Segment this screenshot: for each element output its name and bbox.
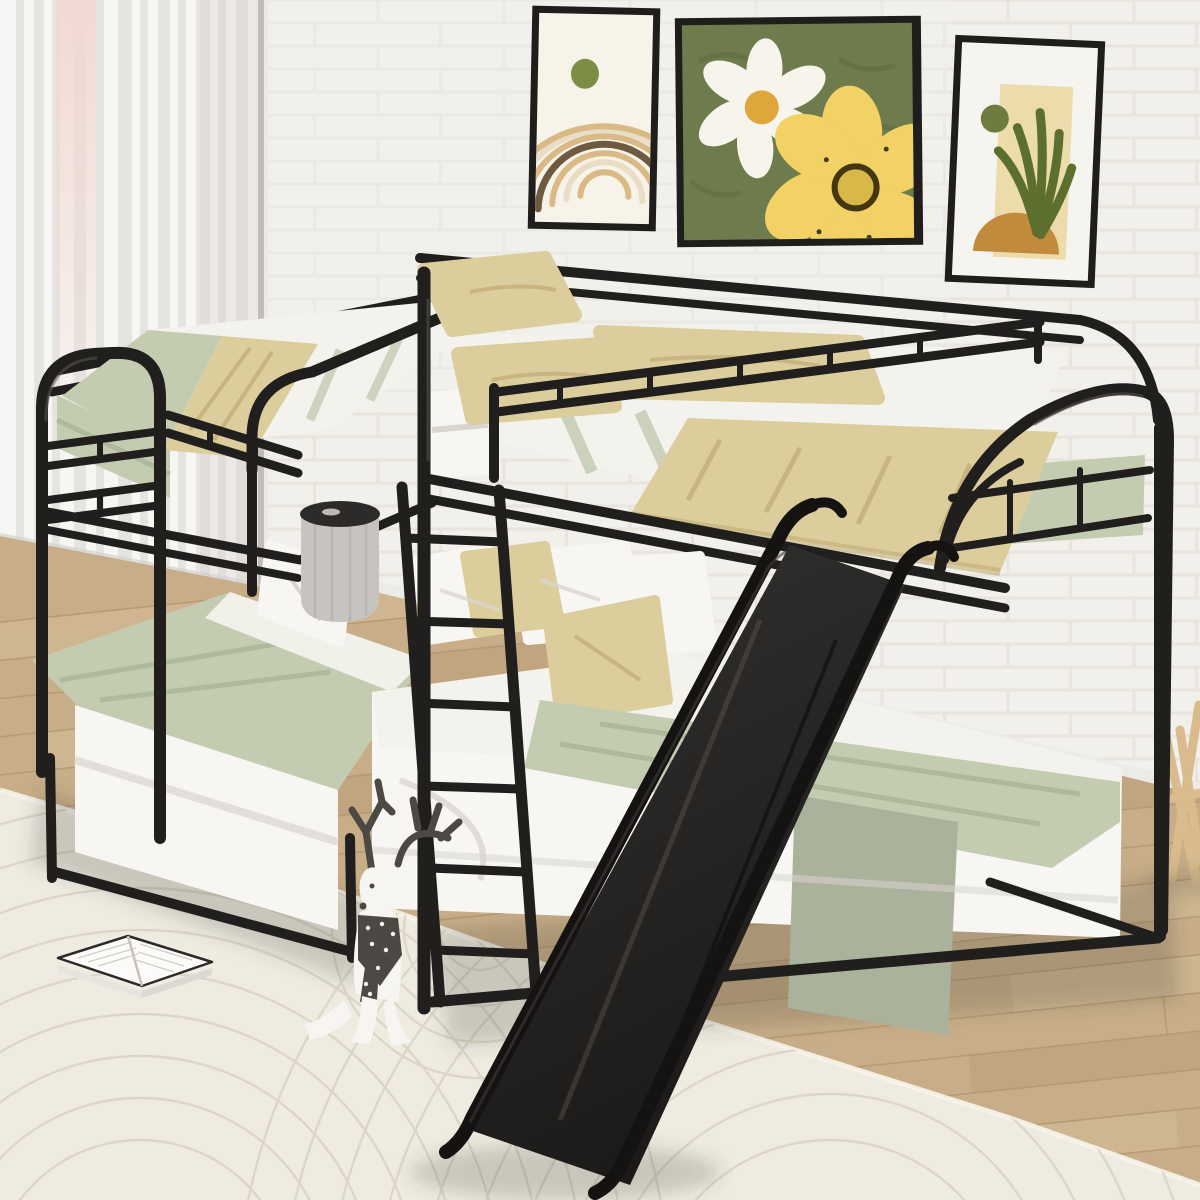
- scene-svg: Bedroom product photo of a black metal L…: [0, 0, 1200, 1200]
- laundry-hamper: [300, 501, 380, 622]
- wall-art-botanical: [945, 35, 1106, 288]
- bedroom-product-photo: Bedroom product photo of a black metal L…: [0, 0, 1200, 1200]
